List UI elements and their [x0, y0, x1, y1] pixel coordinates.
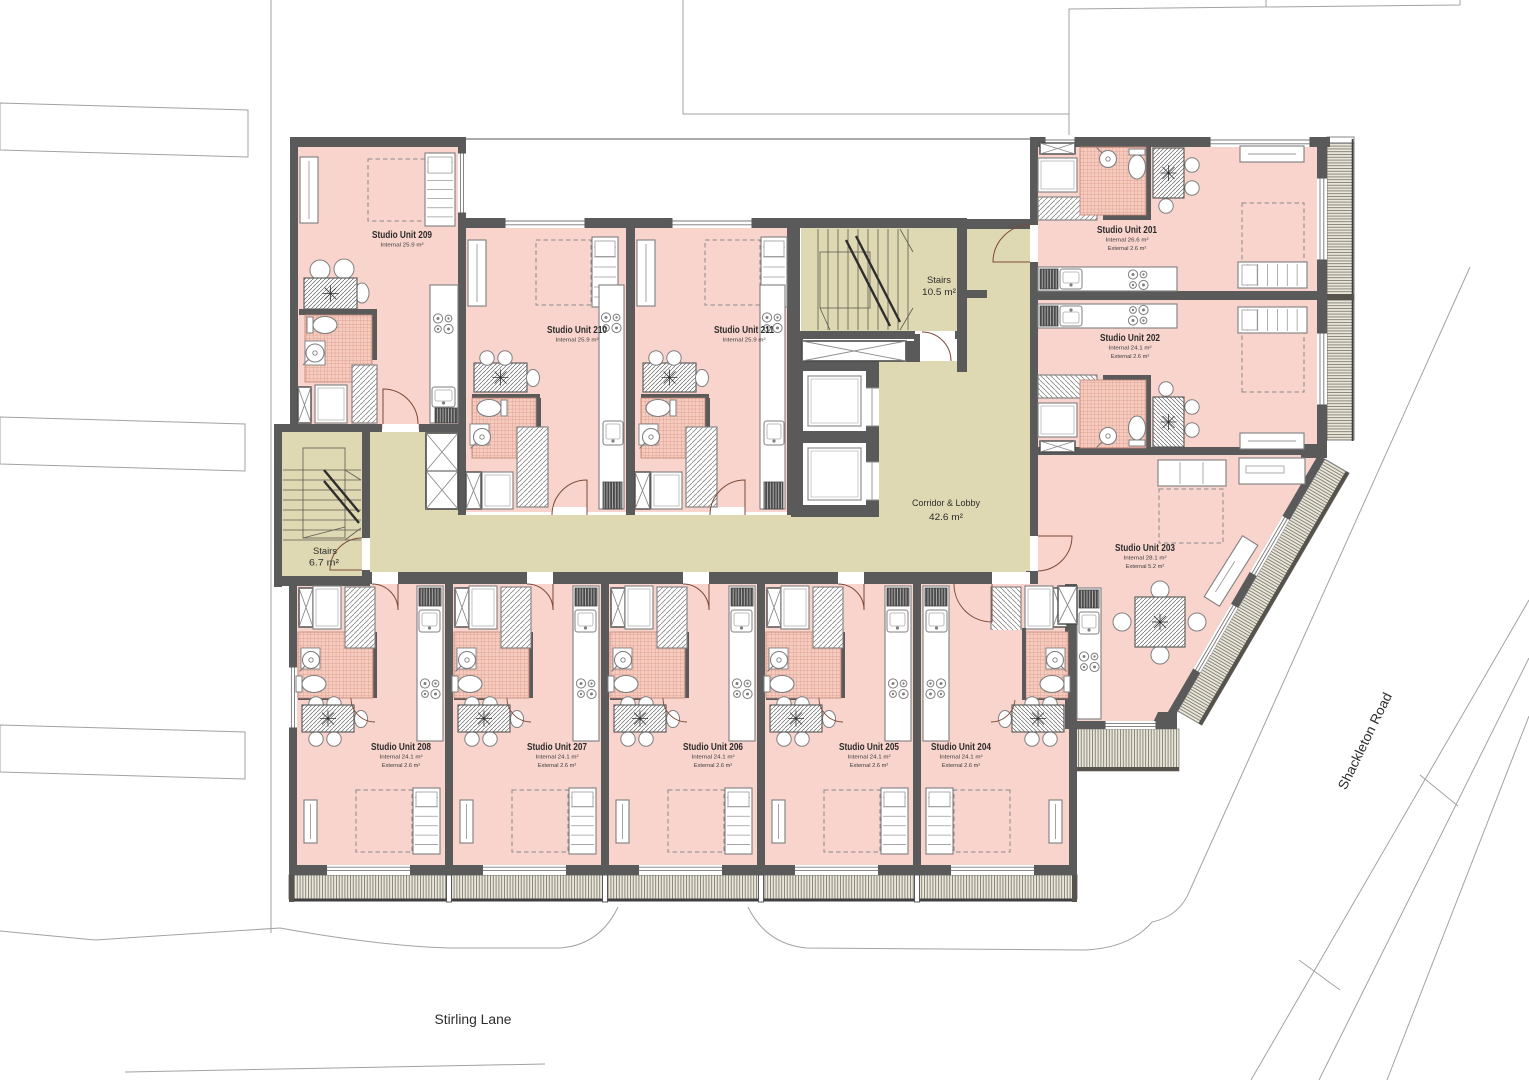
svg-text:Stairs: Stairs — [927, 275, 951, 286]
svg-text:Studio Unit 211: Studio Unit 211 — [714, 325, 774, 336]
svg-text:External 2.6 m²: External 2.6 m² — [1108, 246, 1147, 252]
svg-text:Studio Unit 207: Studio Unit 207 — [527, 742, 587, 753]
svg-text:Internal 24.1 m²: Internal 24.1 m² — [940, 755, 983, 761]
svg-text:Stairs: Stairs — [313, 546, 337, 557]
svg-text:Studio Unit 206: Studio Unit 206 — [683, 742, 743, 753]
svg-text:Internal 24.1 m²: Internal 24.1 m² — [536, 755, 579, 761]
svg-text:Studio Unit 201: Studio Unit 201 — [1097, 225, 1157, 236]
svg-text:Studio Unit 205: Studio Unit 205 — [839, 742, 899, 753]
svg-text:Internal 28.1 m²: Internal 28.1 m² — [1124, 556, 1167, 562]
svg-text:Internal 26.6 m²: Internal 26.6 m² — [1106, 238, 1149, 244]
svg-text:Studio Unit 202: Studio Unit 202 — [1100, 333, 1160, 344]
svg-text:Internal 25.9 m²: Internal 25.9 m² — [723, 338, 766, 344]
svg-text:Internal 24.1 m²: Internal 24.1 m² — [1109, 346, 1152, 352]
svg-text:External 2.6 m²: External 2.6 m² — [850, 763, 889, 769]
svg-text:External 2.6 m²: External 2.6 m² — [694, 763, 733, 769]
svg-text:Corridor & Lobby: Corridor & Lobby — [912, 498, 980, 509]
svg-text:10.5 m²: 10.5 m² — [922, 287, 956, 298]
svg-text:Studio Unit 203: Studio Unit 203 — [1115, 543, 1175, 554]
svg-text:External 2.6 m²: External 2.6 m² — [382, 763, 421, 769]
svg-text:Studio Unit 209: Studio Unit 209 — [372, 230, 432, 241]
svg-text:External 5.2 m²: External 5.2 m² — [1126, 564, 1165, 570]
svg-text:External 2.6 m²: External 2.6 m² — [942, 763, 981, 769]
svg-text:External 2.6 m²: External 2.6 m² — [1111, 354, 1150, 360]
svg-text:Studio Unit 208: Studio Unit 208 — [371, 742, 431, 753]
svg-text:Internal 24.1 m²: Internal 24.1 m² — [692, 755, 735, 761]
svg-text:Studio Unit 210: Studio Unit 210 — [547, 325, 607, 336]
svg-text:Studio Unit 204: Studio Unit 204 — [931, 742, 991, 753]
svg-text:Internal 25.9 m²: Internal 25.9 m² — [381, 243, 424, 249]
svg-text:6.7 m²: 6.7 m² — [309, 558, 339, 569]
svg-text:Stirling Lane: Stirling Lane — [435, 1012, 512, 1027]
svg-text:Internal 24.1 m²: Internal 24.1 m² — [380, 755, 423, 761]
svg-text:42.6 m²: 42.6 m² — [929, 512, 963, 523]
svg-text:Internal 24.1 m²: Internal 24.1 m² — [848, 755, 891, 761]
svg-text:Internal 25.9 m²: Internal 25.9 m² — [556, 338, 599, 344]
svg-text:External 2.6 m²: External 2.6 m² — [538, 763, 577, 769]
